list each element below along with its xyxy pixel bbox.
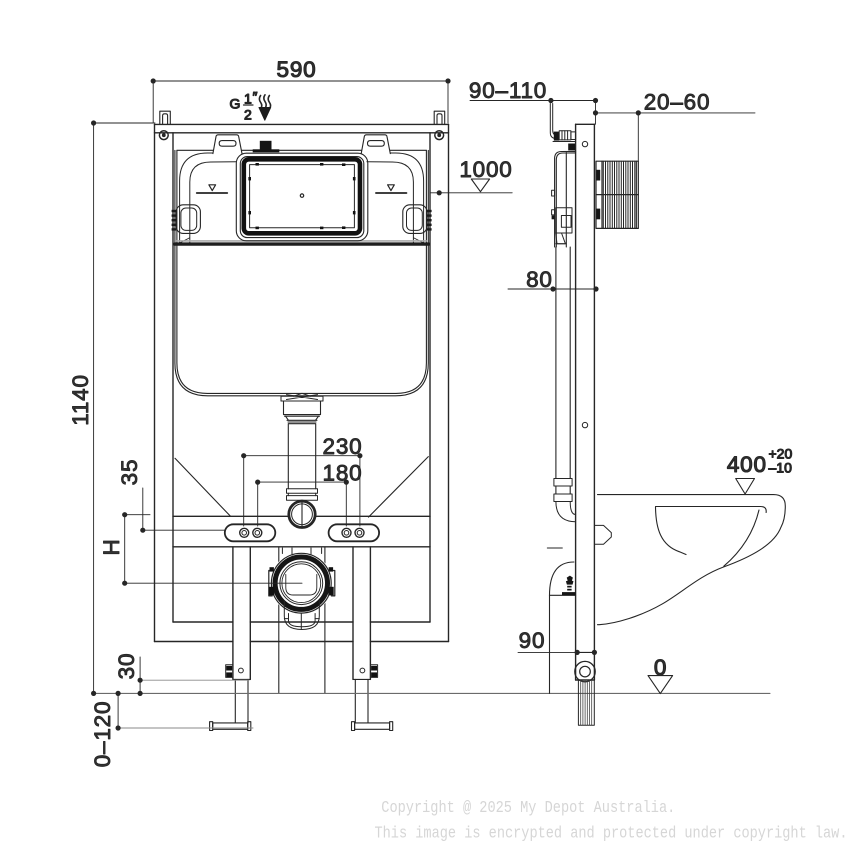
svg-text:Copyright @ 2025 My Depot Aust: Copyright @ 2025 My Depot Australia. [381, 798, 675, 817]
svg-text:400: 400 [727, 452, 767, 477]
svg-text:1: 1 [244, 91, 252, 107]
svg-text:H: H [99, 538, 124, 555]
svg-text:This image is encrypted and pr: This image is encrypted and protected un… [375, 823, 848, 842]
svg-text:590: 590 [277, 57, 317, 82]
svg-text:230: 230 [323, 434, 363, 459]
svg-text:30: 30 [114, 653, 139, 680]
svg-text:0–120: 0–120 [90, 701, 115, 768]
svg-text:0: 0 [654, 655, 667, 680]
svg-text:2: 2 [244, 107, 252, 123]
svg-text:G: G [230, 96, 241, 112]
svg-text:–10: –10 [769, 460, 793, 476]
svg-text:″: ″ [253, 89, 258, 105]
svg-text:20–60: 20–60 [644, 89, 711, 114]
svg-text:180: 180 [323, 461, 363, 486]
svg-text:35: 35 [117, 459, 142, 486]
svg-text:1140: 1140 [68, 374, 93, 426]
svg-text:90: 90 [519, 628, 546, 653]
svg-text:90–110: 90–110 [469, 78, 547, 103]
svg-text:1000: 1000 [459, 157, 512, 182]
svg-text:80: 80 [526, 267, 553, 292]
